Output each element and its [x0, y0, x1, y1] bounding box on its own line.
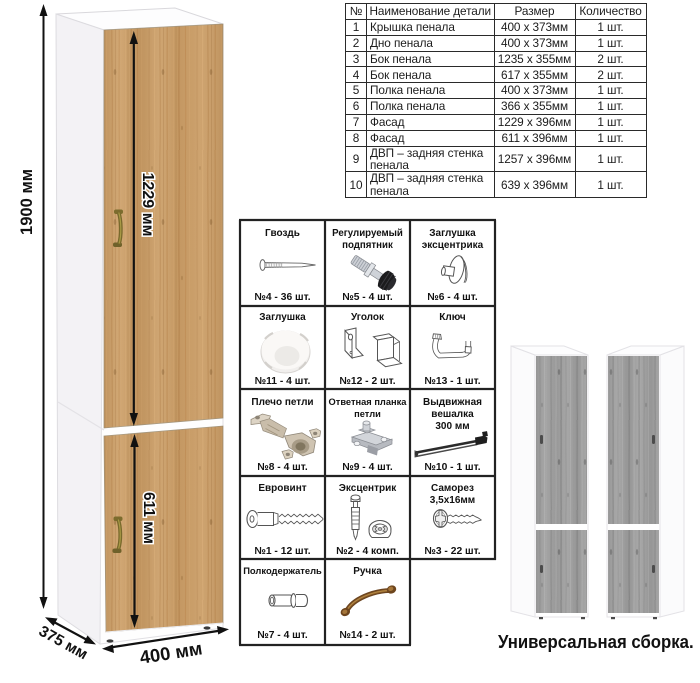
svg-text:подпятник: подпятник [342, 240, 393, 251]
svg-text:№1 - 12 шт.: №1 - 12 шт. [254, 546, 310, 557]
svg-text:300 мм: 300 мм [435, 421, 469, 432]
svg-text:№8 - 4 шт.: №8 - 4 шт. [257, 462, 308, 473]
svg-text:№3 - 22 шт.: №3 - 22 шт. [424, 546, 480, 557]
svg-text:№11 - 4 шт.: №11 - 4 шт. [255, 376, 311, 387]
svg-text:№10 - 1 шт.: №10 - 1 шт. [424, 462, 480, 473]
svg-text:№2 - 4 комп.: №2 - 4 комп. [336, 546, 399, 557]
svg-text:Уголок: Уголок [351, 312, 385, 323]
svg-text:3,5х16мм: 3,5х16мм [430, 495, 475, 506]
svg-text:Плечо петли: Плечо петли [251, 397, 313, 408]
svg-text:Саморез: Саморез [431, 483, 474, 494]
svg-text:вешалка: вешалка [431, 409, 474, 420]
svg-text:№14 - 2 шт.: №14 - 2 шт. [339, 630, 395, 641]
svg-text:Гвоздь: Гвоздь [265, 228, 300, 239]
svg-text:611 мм: 611 мм [140, 492, 157, 544]
svg-text:№6 - 4 шт.: №6 - 4 шт. [427, 292, 478, 303]
svg-text:№5 - 4 шт.: №5 - 4 шт. [342, 292, 393, 303]
svg-text:Полкодержатель: Полкодержатель [243, 565, 322, 576]
svg-text:Евровинт: Евровинт [258, 483, 306, 494]
svg-text:№13 - 1 шт.: №13 - 1 шт. [424, 376, 480, 387]
svg-text:№7 - 4 шт.: №7 - 4 шт. [257, 630, 308, 641]
svg-text:1900 мм: 1900 мм [17, 169, 36, 235]
svg-text:Ключ: Ключ [439, 312, 466, 323]
svg-text:№12 - 2 шт.: №12 - 2 шт. [339, 376, 395, 387]
svg-text:Регулируемый: Регулируемый [332, 228, 403, 239]
svg-text:Заглушка: Заглушка [429, 228, 476, 239]
svg-text:эксцентрика: эксцентрика [422, 240, 484, 251]
svg-text:№4 - 36 шт.: №4 - 36 шт. [254, 292, 310, 303]
svg-text:Эксцентрик: Эксцентрик [339, 483, 397, 494]
svg-text:1229 мм: 1229 мм [139, 172, 157, 236]
svg-text:Заглушка: Заглушка [259, 312, 306, 323]
svg-text:Выдвижная: Выдвижная [423, 397, 482, 408]
svg-text:петли: петли [354, 409, 381, 419]
svg-text:Ручка: Ручка [353, 566, 382, 577]
svg-text:Ответная планка: Ответная планка [329, 397, 408, 407]
svg-text:№9 - 4 шт.: №9 - 4 шт. [342, 462, 393, 473]
